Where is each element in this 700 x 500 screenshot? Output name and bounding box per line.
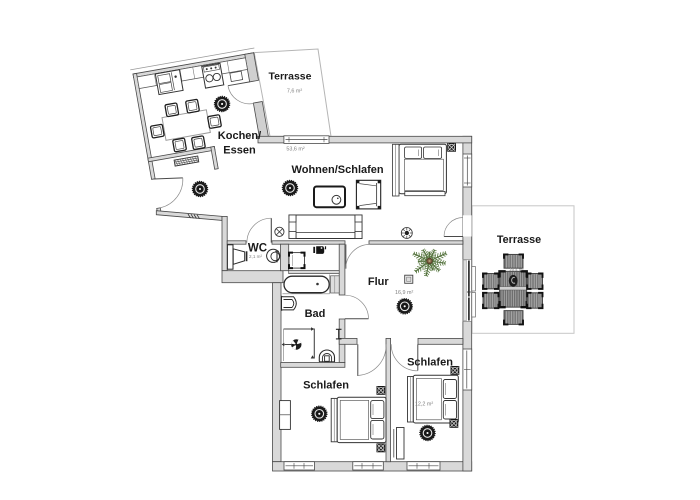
- svg-text:12,2 m²: 12,2 m²: [415, 401, 433, 407]
- svg-text:Wohnen/Schlafen: Wohnen/Schlafen: [292, 164, 384, 176]
- svg-text:7,6 m²: 7,6 m²: [287, 88, 302, 94]
- svg-text:Essen: Essen: [223, 144, 256, 156]
- svg-text:Schlafen: Schlafen: [303, 379, 349, 391]
- svg-text:Terrasse: Terrasse: [268, 70, 311, 82]
- svg-text:Bad: Bad: [305, 308, 326, 320]
- svg-text:Terrasse: Terrasse: [497, 234, 541, 246]
- svg-text:20,4 m²: 20,4 m²: [509, 267, 524, 272]
- svg-text:Kochen/: Kochen/: [218, 130, 261, 142]
- svg-text:Schlafen: Schlafen: [407, 356, 453, 368]
- svg-text:WC: WC: [248, 243, 267, 255]
- svg-text:Flur: Flur: [368, 276, 389, 288]
- svg-text:53,6 m²: 53,6 m²: [286, 147, 304, 153]
- svg-text:2,1 m²: 2,1 m²: [249, 254, 262, 259]
- svg-text:16,9 m²: 16,9 m²: [395, 290, 413, 296]
